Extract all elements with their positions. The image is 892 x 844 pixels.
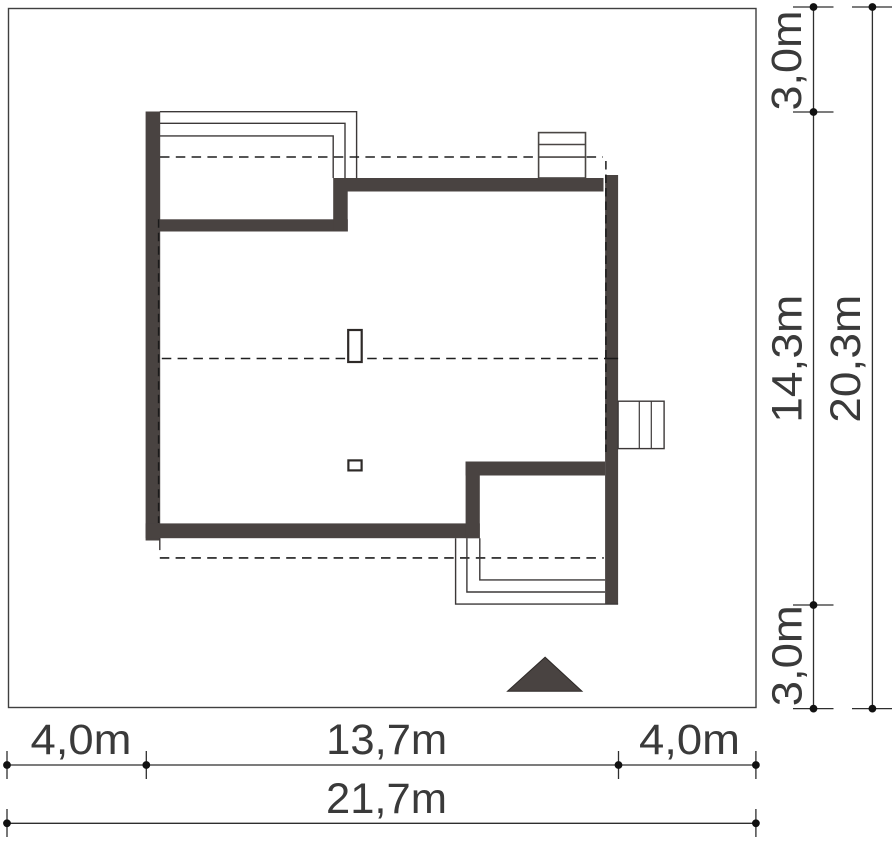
svg-text:20,3m: 20,3m [822, 295, 870, 423]
svg-text:4,0m: 4,0m [639, 716, 740, 764]
svg-text:4,0m: 4,0m [31, 716, 132, 764]
svg-text:14,3m: 14,3m [764, 295, 812, 423]
svg-text:3,0m: 3,0m [763, 11, 811, 111]
svg-text:21,7m: 21,7m [326, 775, 447, 823]
svg-text:3,0m: 3,0m [764, 605, 812, 706]
svg-text:13,7m: 13,7m [326, 716, 447, 764]
